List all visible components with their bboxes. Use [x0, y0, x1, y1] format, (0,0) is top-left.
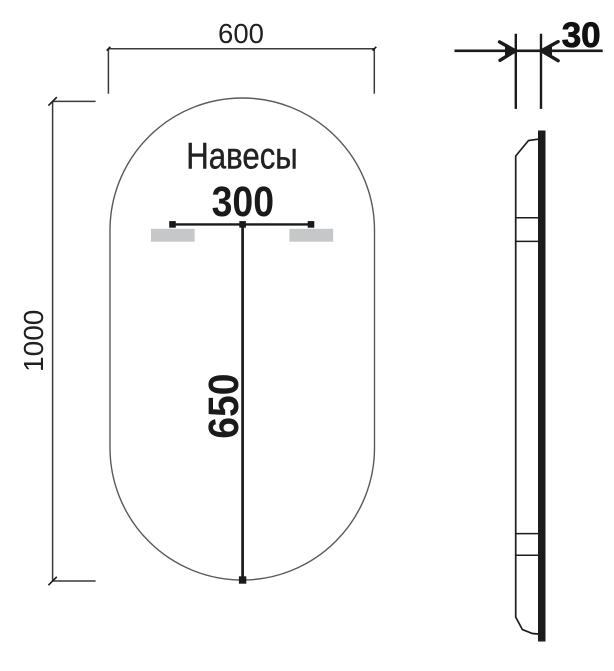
svg-text:1000: 1000 — [18, 310, 49, 372]
svg-text:300: 300 — [212, 178, 274, 226]
svg-text:Навесы: Навесы — [186, 136, 297, 177]
svg-text:30: 30 — [562, 16, 601, 55]
svg-text:600: 600 — [218, 18, 264, 49]
svg-text:650: 650 — [199, 373, 247, 438]
